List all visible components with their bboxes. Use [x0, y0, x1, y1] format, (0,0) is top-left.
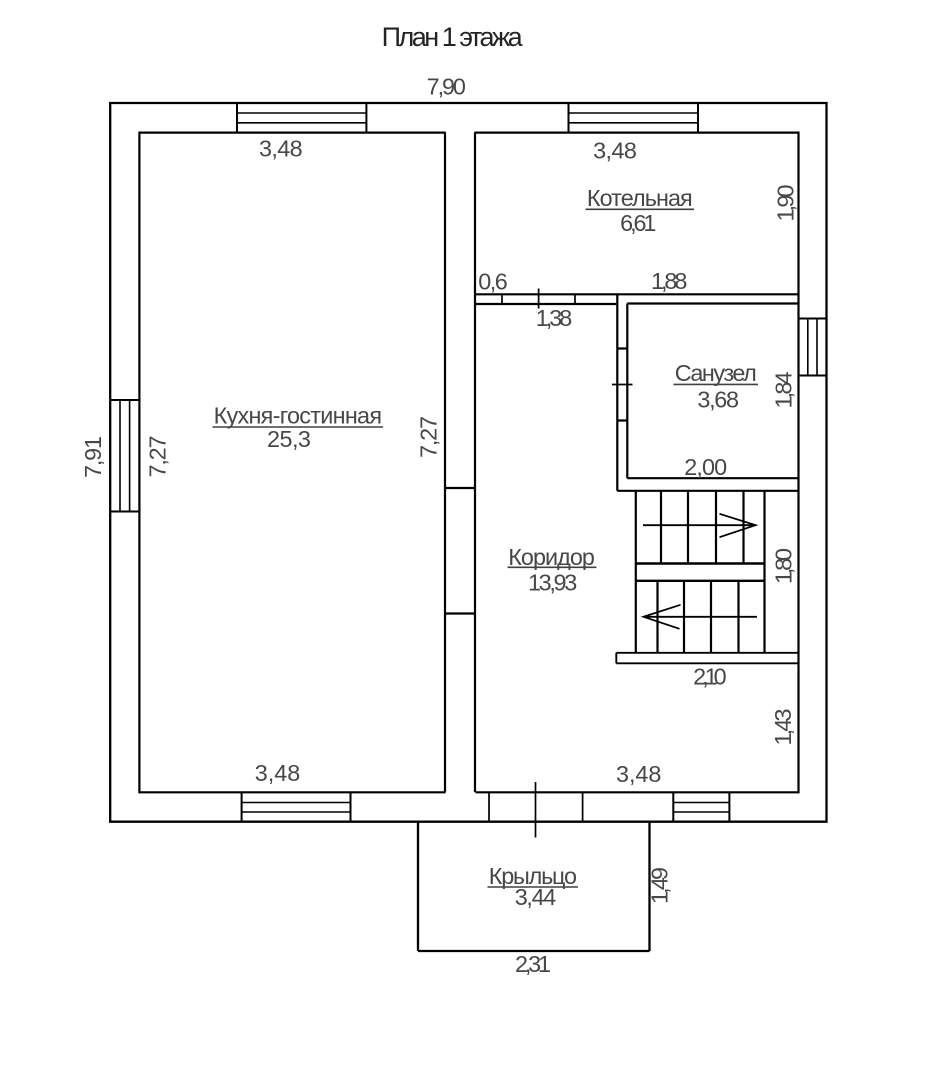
svg-text:7,91: 7,91 — [80, 436, 106, 478]
svg-text:План 1 этажа: План 1 этажа — [382, 22, 524, 52]
svg-text:2,10: 2,10 — [693, 664, 727, 690]
svg-text:3,48: 3,48 — [259, 136, 303, 162]
svg-text:3,48: 3,48 — [255, 760, 301, 786]
svg-text:Котельная: Котельная — [587, 185, 693, 211]
svg-text:6,61: 6,61 — [620, 210, 656, 236]
svg-text:7,27: 7,27 — [145, 436, 171, 478]
svg-text:3,68: 3,68 — [697, 387, 739, 413]
svg-text:7,90: 7,90 — [427, 74, 466, 100]
svg-text:1,43: 1,43 — [770, 709, 796, 746]
svg-text:1,90: 1,90 — [773, 185, 799, 222]
svg-text:25,3: 25,3 — [267, 426, 311, 452]
svg-text:3,48: 3,48 — [616, 761, 662, 787]
svg-text:0,6: 0,6 — [478, 268, 508, 294]
svg-text:7,27: 7,27 — [416, 416, 442, 458]
svg-text:3,44: 3,44 — [515, 884, 557, 910]
svg-text:2,00: 2,00 — [684, 454, 727, 480]
svg-text:1,88: 1,88 — [651, 268, 688, 294]
svg-text:2,31: 2,31 — [515, 951, 551, 977]
svg-text:Кухня-гостинная: Кухня-гостинная — [214, 403, 382, 429]
svg-text:1,84: 1,84 — [770, 372, 796, 409]
svg-text:Коридор: Коридор — [508, 544, 595, 570]
svg-text:3,48: 3,48 — [593, 138, 637, 164]
svg-text:1,38: 1,38 — [536, 305, 573, 331]
svg-text:1,49: 1,49 — [647, 867, 673, 904]
svg-text:Санузел: Санузел — [675, 360, 757, 386]
svg-text:1,80: 1,80 — [771, 548, 797, 584]
svg-text:13,93: 13,93 — [528, 570, 577, 596]
